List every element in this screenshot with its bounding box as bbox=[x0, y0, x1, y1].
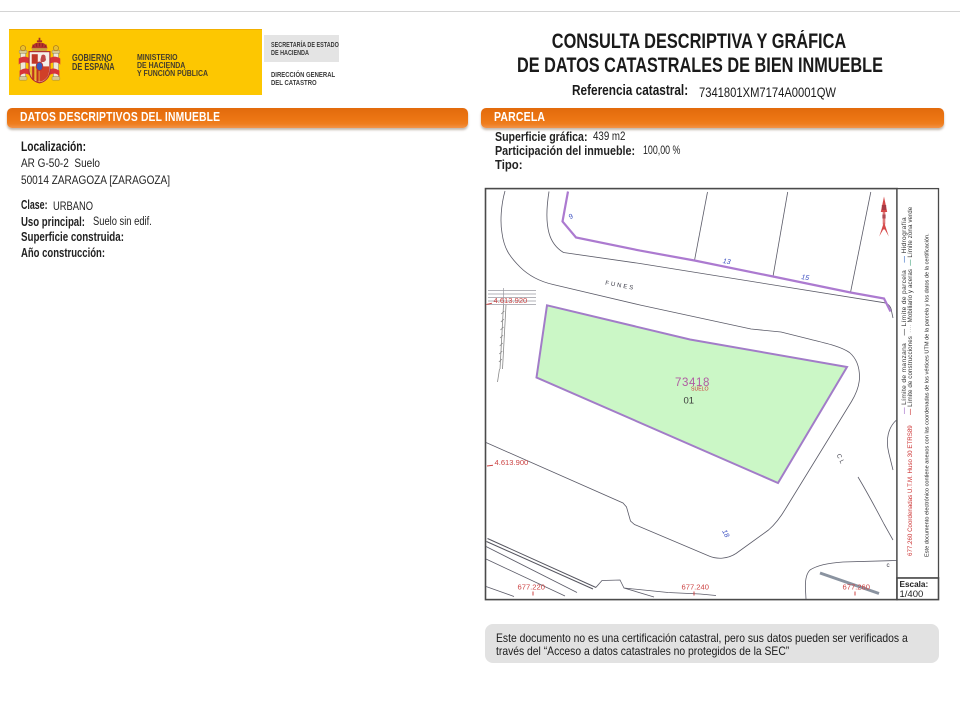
svg-text:— Límite de construcciones ···: — Límite de construcciones ···· Mobiliar… bbox=[907, 206, 914, 415]
svg-text:Este documento electrónico con: Este documento electrónico contiene anex… bbox=[925, 233, 931, 557]
svg-text:677.260: 677.260 bbox=[843, 583, 870, 592]
svg-text:677.260 Coordenadas U.T.M. Hus: 677.260 Coordenadas U.T.M. Huso 30 ETRS8… bbox=[907, 425, 914, 556]
svg-text:15: 15 bbox=[801, 274, 810, 282]
svg-text:SUELO: SUELO bbox=[691, 387, 709, 393]
svg-text:4.613.900: 4.613.900 bbox=[495, 458, 529, 467]
svg-text:1/400: 1/400 bbox=[900, 589, 924, 600]
svg-text:Escala:: Escala: bbox=[900, 580, 929, 589]
svg-text:c: c bbox=[887, 562, 890, 569]
svg-text:677.240: 677.240 bbox=[682, 583, 709, 592]
svg-text:13: 13 bbox=[722, 258, 731, 266]
svg-text:4.613.920: 4.613.920 bbox=[494, 296, 528, 305]
svg-text:01: 01 bbox=[684, 396, 695, 407]
svg-text:677.220: 677.220 bbox=[518, 583, 545, 592]
